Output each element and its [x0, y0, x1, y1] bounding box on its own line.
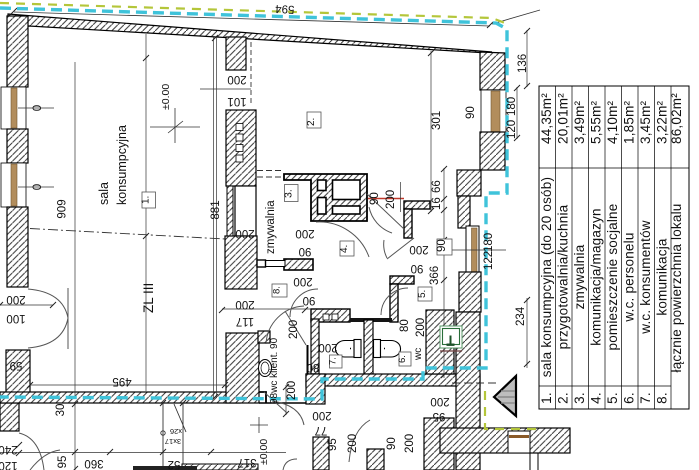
svg-text:90: 90 [386, 437, 398, 450]
svg-text:909: 909 [57, 199, 69, 218]
svg-text:7.: 7. [328, 357, 339, 365]
svg-text:200: 200 [409, 243, 428, 255]
svg-text:200: 200 [288, 320, 300, 339]
svg-text:52: 52 [168, 458, 181, 470]
svg-text:3.: 3. [572, 392, 587, 404]
svg-text:komunikacja: komunikacja [655, 238, 670, 316]
svg-text:200: 200 [318, 341, 337, 353]
svg-text:200: 200 [430, 395, 449, 407]
svg-text:301: 301 [431, 111, 443, 130]
svg-text:1.: 1. [141, 196, 152, 204]
svg-text:117: 117 [236, 315, 254, 327]
svg-text:360: 360 [84, 457, 103, 469]
svg-text:101: 101 [227, 95, 246, 107]
svg-text:wc: wc [413, 348, 424, 361]
svg-text:120: 120 [506, 120, 518, 139]
svg-text:200: 200 [404, 434, 416, 453]
svg-text:200: 200 [286, 381, 298, 400]
svg-text:zmywalnia: zmywalnia [265, 200, 277, 254]
svg-text:90: 90 [303, 294, 316, 306]
svg-text:1,85m²: 1,85m² [622, 100, 637, 144]
svg-text:±0.00: ±0.00 [258, 439, 270, 465]
svg-text:80: 80 [307, 361, 320, 373]
svg-text:594: 594 [274, 2, 294, 15]
svg-text:95: 95 [327, 438, 339, 451]
svg-text:4.: 4. [589, 392, 604, 404]
svg-text:200: 200 [415, 318, 427, 337]
svg-text:366: 366 [429, 266, 441, 285]
svg-text:8.: 8. [272, 286, 283, 294]
svg-text:±0.00: ±0.00 [160, 84, 172, 110]
svg-text:pomieszczenie socjalne: pomieszczenie socjalne [605, 204, 620, 351]
svg-text:317: 317 [237, 456, 256, 468]
svg-text:180: 180 [483, 233, 495, 252]
svg-text:4.: 4. [339, 245, 350, 253]
svg-text:77: 77 [315, 424, 328, 436]
svg-text:200: 200 [347, 434, 359, 453]
svg-text:16: 16 [431, 197, 443, 210]
svg-text:200: 200 [312, 409, 331, 421]
svg-text:200: 200 [385, 190, 397, 209]
svg-text:95: 95 [57, 456, 69, 469]
svg-text:3.: 3. [283, 189, 295, 198]
svg-text:2.: 2. [556, 392, 571, 404]
svg-text:ZL III: ZL III [141, 283, 156, 313]
svg-text:90: 90 [436, 239, 448, 252]
svg-text:90: 90 [465, 106, 477, 119]
svg-text:90: 90 [369, 192, 381, 205]
svg-text:200: 200 [235, 227, 254, 239]
svg-text:240: 240 [0, 443, 18, 455]
svg-text:495: 495 [112, 375, 131, 387]
svg-text:180: 180 [506, 97, 518, 116]
svg-text:w.c. konsumentów: w.c. konsumentów [638, 220, 653, 335]
svg-text:przygotowalnia/kuchnia: przygotowalnia/kuchnia [556, 204, 571, 349]
svg-text:3x17: 3x17 [165, 437, 181, 446]
svg-text:4,10m²: 4,10m² [605, 100, 620, 144]
svg-text:100: 100 [6, 312, 25, 324]
svg-text:881: 881 [210, 200, 222, 219]
svg-text:122: 122 [483, 251, 495, 270]
svg-text:komunikacja/magazyn: komunikacja/magazyn [589, 208, 604, 345]
svg-text:sala konsumpcyjna (do 20 osób): sala konsumpcyjna (do 20 osób) [539, 177, 554, 377]
svg-text:98wc klient. 90: 98wc klient. 90 [269, 337, 280, 404]
svg-text:20,01m²: 20,01m² [556, 93, 571, 144]
svg-text:200: 200 [235, 298, 254, 310]
svg-text:90: 90 [411, 262, 424, 274]
svg-text:x26: x26 [170, 427, 182, 436]
svg-text:2.: 2. [306, 118, 317, 126]
svg-text:1.: 1. [539, 392, 554, 404]
svg-text:5,55m²: 5,55m² [589, 100, 604, 144]
svg-text:200: 200 [227, 73, 246, 85]
svg-text:59: 59 [10, 359, 23, 371]
svg-text:sala: sala [97, 182, 111, 205]
svg-text:90: 90 [299, 245, 312, 257]
svg-text:w.c. personelu: w.c. personelu [622, 232, 637, 322]
svg-text:80: 80 [399, 319, 411, 332]
svg-text:6.: 6. [397, 355, 408, 363]
svg-text:0: 0 [32, 184, 44, 190]
svg-text:44,35m²: 44,35m² [539, 93, 554, 144]
svg-text:3,22m²: 3,22m² [655, 100, 670, 144]
svg-text:95: 95 [433, 410, 446, 422]
svg-text:konsumpcyjna: konsumpcyjna [115, 125, 129, 205]
svg-text:łącznie powierzchnia lokalu: łącznie powierzchnia lokalu [669, 204, 684, 373]
svg-text:200: 200 [6, 293, 25, 305]
svg-text:200: 200 [293, 275, 312, 287]
svg-text:8.: 8. [655, 392, 670, 404]
svg-text:5.: 5. [417, 290, 428, 298]
svg-text:30: 30 [55, 404, 67, 417]
svg-text:3,45m²: 3,45m² [638, 100, 653, 144]
svg-text:0: 0 [32, 105, 44, 111]
svg-text:200: 200 [295, 227, 314, 239]
svg-text:zmywalnia: zmywalnia [572, 244, 587, 309]
svg-text:136: 136 [517, 54, 529, 73]
svg-text:86,02m²: 86,02m² [669, 93, 684, 144]
svg-text:3,49m²: 3,49m² [572, 100, 587, 144]
svg-text:5.: 5. [605, 392, 620, 404]
svg-text:120: 120 [0, 459, 18, 470]
svg-text:66: 66 [431, 180, 443, 193]
svg-text:234: 234 [515, 306, 527, 326]
svg-text:6.: 6. [622, 392, 637, 404]
svg-text:7.: 7. [638, 392, 653, 404]
